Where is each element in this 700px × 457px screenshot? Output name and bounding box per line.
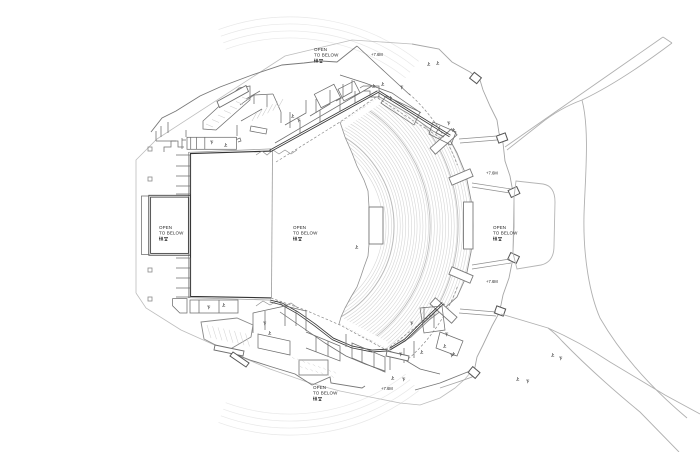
svg-text:OPEN: OPEN bbox=[313, 385, 326, 390]
svg-text:OPEN: OPEN bbox=[493, 225, 506, 230]
svg-text:TO BELOW: TO BELOW bbox=[313, 391, 338, 396]
svg-text:TO BELOW: TO BELOW bbox=[493, 231, 518, 236]
svg-text:+7.6M: +7.6M bbox=[381, 386, 393, 391]
svg-text:+7.6M: +7.6M bbox=[371, 52, 383, 57]
svg-text:+7.6M: +7.6M bbox=[486, 279, 498, 284]
svg-text:TO BELOW: TO BELOW bbox=[314, 53, 339, 58]
svg-text:OPEN: OPEN bbox=[293, 225, 306, 230]
svg-text:TO BELOW: TO BELOW bbox=[159, 231, 184, 236]
svg-text:+7.6M: +7.6M bbox=[486, 171, 498, 176]
svg-text:TO BELOW: TO BELOW bbox=[293, 231, 318, 236]
svg-text:OPEN: OPEN bbox=[159, 225, 172, 230]
svg-text:OPEN: OPEN bbox=[314, 47, 327, 52]
